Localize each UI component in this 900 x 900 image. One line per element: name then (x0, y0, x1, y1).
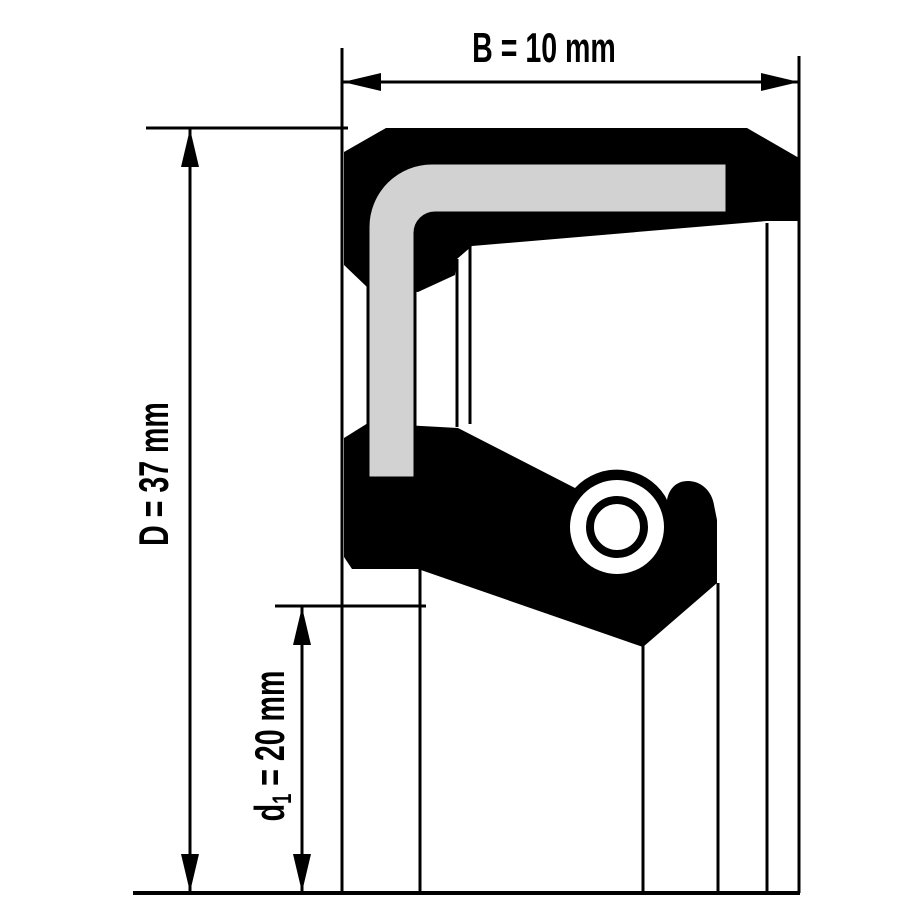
d1-arrowhead-bottom-icon (293, 854, 311, 892)
b-dimension-label: B = 10 mm (472, 23, 616, 71)
b-arrowhead-right-icon (761, 73, 799, 91)
d1-label-rest: = 20 mm (245, 671, 293, 794)
b-arrowhead-left-icon (343, 73, 381, 91)
d-dimension-label: D = 37 mm (129, 402, 177, 546)
d1-label-subscript: 1 (266, 794, 296, 804)
d1-dimension-label: d1 = 20 mm (245, 671, 296, 822)
diagram-canvas: B = 10 mm D = 37 mm d1 = 20 mm (0, 0, 900, 900)
d-arrowhead-bottom-icon (181, 854, 199, 892)
d-arrowhead-top-icon (181, 129, 199, 167)
spring-groove (570, 480, 664, 574)
d1-arrowhead-top-icon (293, 607, 311, 645)
d1-label-prefix: d (245, 804, 293, 821)
seal-dimension-diagram: B = 10 mm D = 37 mm d1 = 20 mm (0, 0, 900, 900)
